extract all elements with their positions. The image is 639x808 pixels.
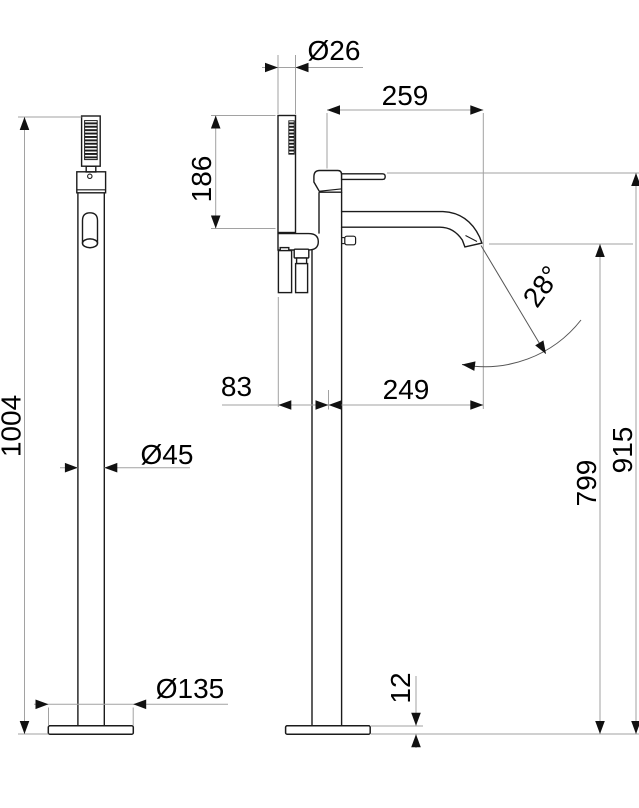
dim-spout-reach: 249 [329, 374, 484, 410]
dim-label-body-height: 915 [607, 427, 638, 474]
hose-connector-left [278, 251, 291, 293]
dimension-drawing: 1004 Ø45 Ø135 Ø26 [0, 0, 639, 808]
dim-base-thickness: 12 [371, 672, 423, 748]
dim-label-outlet-height: 799 [571, 460, 602, 507]
drawing-canvas: 1004 Ø45 Ø135 Ø26 [0, 0, 639, 808]
spray-face-side [289, 121, 294, 154]
dim-label-base-diameter: Ø135 [156, 673, 225, 704]
dim-handshower-length: 186 [186, 116, 276, 229]
spray-face-front [85, 121, 98, 160]
dim-label-spout-reach: 249 [383, 374, 430, 405]
dim-label-spout-angle: 28° [517, 260, 567, 312]
dim-handshower-diameter: Ø26 [262, 35, 363, 114]
dim-label-base-thickness: 12 [385, 672, 416, 703]
dim-outlet-height: 799 [489, 244, 633, 734]
base-plate-side [286, 726, 371, 734]
dim-spout-angle: 28° [461, 246, 581, 371]
hose-nut-cap [294, 249, 309, 258]
dim-body-height: 915 [371, 173, 639, 734]
dim-label-handshower-offset: 83 [221, 371, 252, 402]
dim-label-total-height: 1004 [0, 395, 27, 457]
side-view [278, 116, 482, 735]
hose-nut-neck [297, 258, 307, 264]
diverter-knob [345, 236, 356, 245]
dim-label-handshower-length: 186 [186, 156, 217, 203]
dim-handshower-offset: 83 [221, 297, 483, 410]
dim-column-diameter: Ø45 [60, 439, 193, 473]
angle-arc [462, 320, 581, 367]
base-plate-front [48, 726, 133, 734]
dim-label-column-diameter: Ø45 [141, 439, 194, 470]
dim-label-handshower-diameter: Ø26 [308, 35, 361, 66]
holder-screw [88, 174, 92, 178]
spout-side [342, 212, 482, 247]
dim-total-height: 1004 [0, 117, 82, 734]
front-view [48, 116, 133, 734]
hose-connector-right [296, 264, 308, 293]
dim-base-diameter: Ø135 [34, 673, 228, 726]
lever-handle [342, 174, 386, 180]
spout-outlet-front [83, 239, 98, 248]
dim-label-spout-projection: 259 [382, 80, 429, 111]
